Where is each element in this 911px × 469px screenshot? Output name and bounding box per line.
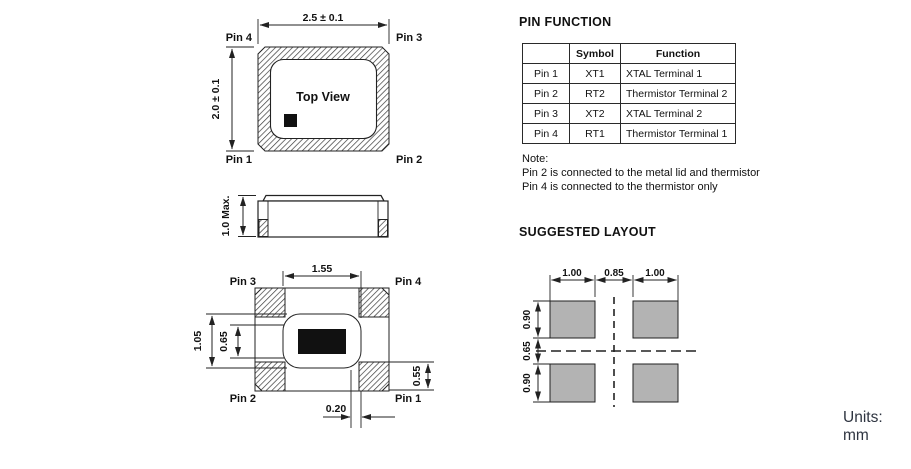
- layout-dim-side-top: 0.90: [522, 309, 533, 329]
- symbol-cell: XT2: [570, 104, 621, 124]
- side-view-left-pad: [259, 220, 268, 237]
- pin-cell: Pin 1: [523, 64, 570, 84]
- note-label: Note:: [522, 152, 760, 166]
- side-view-right-pad: [379, 220, 388, 237]
- layout-dim-top-right: 1.00: [645, 268, 665, 279]
- bottom-view-pad-height-dim: 0.55: [411, 366, 423, 387]
- top-view-pin2-label: Pin 2: [396, 154, 422, 166]
- bottom-view-crystal: [298, 329, 346, 354]
- side-view-height-dim: 1.0 Max.: [220, 195, 232, 236]
- bottom-view-drawing: 1.55 1.05 0.65 0.55: [192, 263, 434, 428]
- side-view-extension-lines: [238, 196, 256, 237]
- suggested-layout-title: SUGGESTED LAYOUT: [519, 225, 656, 239]
- header-blank: [523, 44, 570, 64]
- bottom-view-pin4-label: Pin 4: [395, 276, 422, 288]
- top-view-label: Top View: [296, 90, 350, 104]
- table-row: Pin 1 XT1 XTAL Terminal 1: [523, 64, 736, 84]
- bottom-view-outer-dim: 1.05: [192, 331, 204, 352]
- bottom-view-inner-dim: 0.65: [218, 331, 230, 352]
- table-row: Pin 2 RT2 Thermistor Terminal 2: [523, 84, 736, 104]
- top-view-width-dim: 2.5 ± 0.1: [303, 12, 344, 24]
- layout-pad-bottom-left: [550, 364, 595, 402]
- datasheet-page: Top View 2.5 ± 0.1 2.0 ± 0.1 Pin 4 Pin 3…: [0, 0, 911, 469]
- pin-cell: Pin 3: [523, 104, 570, 124]
- layout-dim-top-center: 0.85: [604, 268, 624, 279]
- top-view-drawing: Top View 2.5 ± 0.1 2.0 ± 0.1 Pin 4 Pin 3…: [210, 12, 422, 166]
- bottom-view-offset-dim: 0.20: [326, 403, 347, 415]
- layout-dim-side-bottom: 0.90: [522, 373, 533, 393]
- note-line-2: Pin 4 is connected to the thermistor onl…: [522, 180, 760, 194]
- pin-function-title: PIN FUNCTION: [519, 15, 612, 29]
- pin-cell: Pin 4: [523, 124, 570, 144]
- symbol-cell: XT1: [570, 64, 621, 84]
- side-view-body: [258, 201, 388, 237]
- layout-pad-top-left: [550, 301, 595, 338]
- layout-dim-top-left: 1.00: [562, 268, 582, 279]
- top-view-pin4-label: Pin 4: [226, 32, 253, 44]
- pin-cell: Pin 2: [523, 84, 570, 104]
- table-header-row: Symbol Function: [523, 44, 736, 64]
- function-cell: XTAL Terminal 2: [621, 104, 736, 124]
- suggested-layout-drawing: 1.00 0.85 1.00 0.90 0.65 0.90: [505, 255, 705, 435]
- symbol-cell: RT2: [570, 84, 621, 104]
- units-label: Units: mm: [843, 409, 911, 445]
- header-symbol: Symbol: [570, 44, 621, 64]
- function-cell: XTAL Terminal 1: [621, 64, 736, 84]
- pin-function-table: Symbol Function Pin 1 XT1 XTAL Terminal …: [522, 43, 736, 144]
- function-cell: Thermistor Terminal 2: [621, 84, 736, 104]
- top-view-pin1-label: Pin 1: [226, 154, 252, 166]
- table-row: Pin 3 XT2 XTAL Terminal 2: [523, 104, 736, 124]
- bottom-view-pin2-label: Pin 2: [230, 393, 256, 405]
- function-cell: Thermistor Terminal 1: [621, 124, 736, 144]
- bottom-view-width-dim: 1.55: [312, 263, 333, 275]
- layout-pad-bottom-right: [633, 364, 678, 402]
- symbol-cell: RT1: [570, 124, 621, 144]
- side-view-drawing: 1.0 Max.: [220, 195, 388, 237]
- table-row: Pin 4 RT1 Thermistor Terminal 1: [523, 124, 736, 144]
- layout-dim-side-center: 0.65: [522, 341, 533, 361]
- bottom-view-pin1-label: Pin 1: [395, 393, 421, 405]
- side-view-lid: [263, 196, 384, 202]
- layout-pad-top-right: [633, 301, 678, 338]
- bottom-view-pin3-label: Pin 3: [230, 276, 256, 288]
- header-function: Function: [621, 44, 736, 64]
- note-block: Note: Pin 2 is connected to the metal li…: [522, 152, 760, 194]
- top-view-pin3-label: Pin 3: [396, 32, 422, 44]
- package-drawings: Top View 2.5 ± 0.1 2.0 ± 0.1 Pin 4 Pin 3…: [0, 0, 460, 469]
- pin1-marker: [284, 114, 297, 127]
- note-line-1: Pin 2 is connected to the metal lid and …: [522, 166, 760, 180]
- top-view-height-dim: 2.0 ± 0.1: [210, 78, 222, 119]
